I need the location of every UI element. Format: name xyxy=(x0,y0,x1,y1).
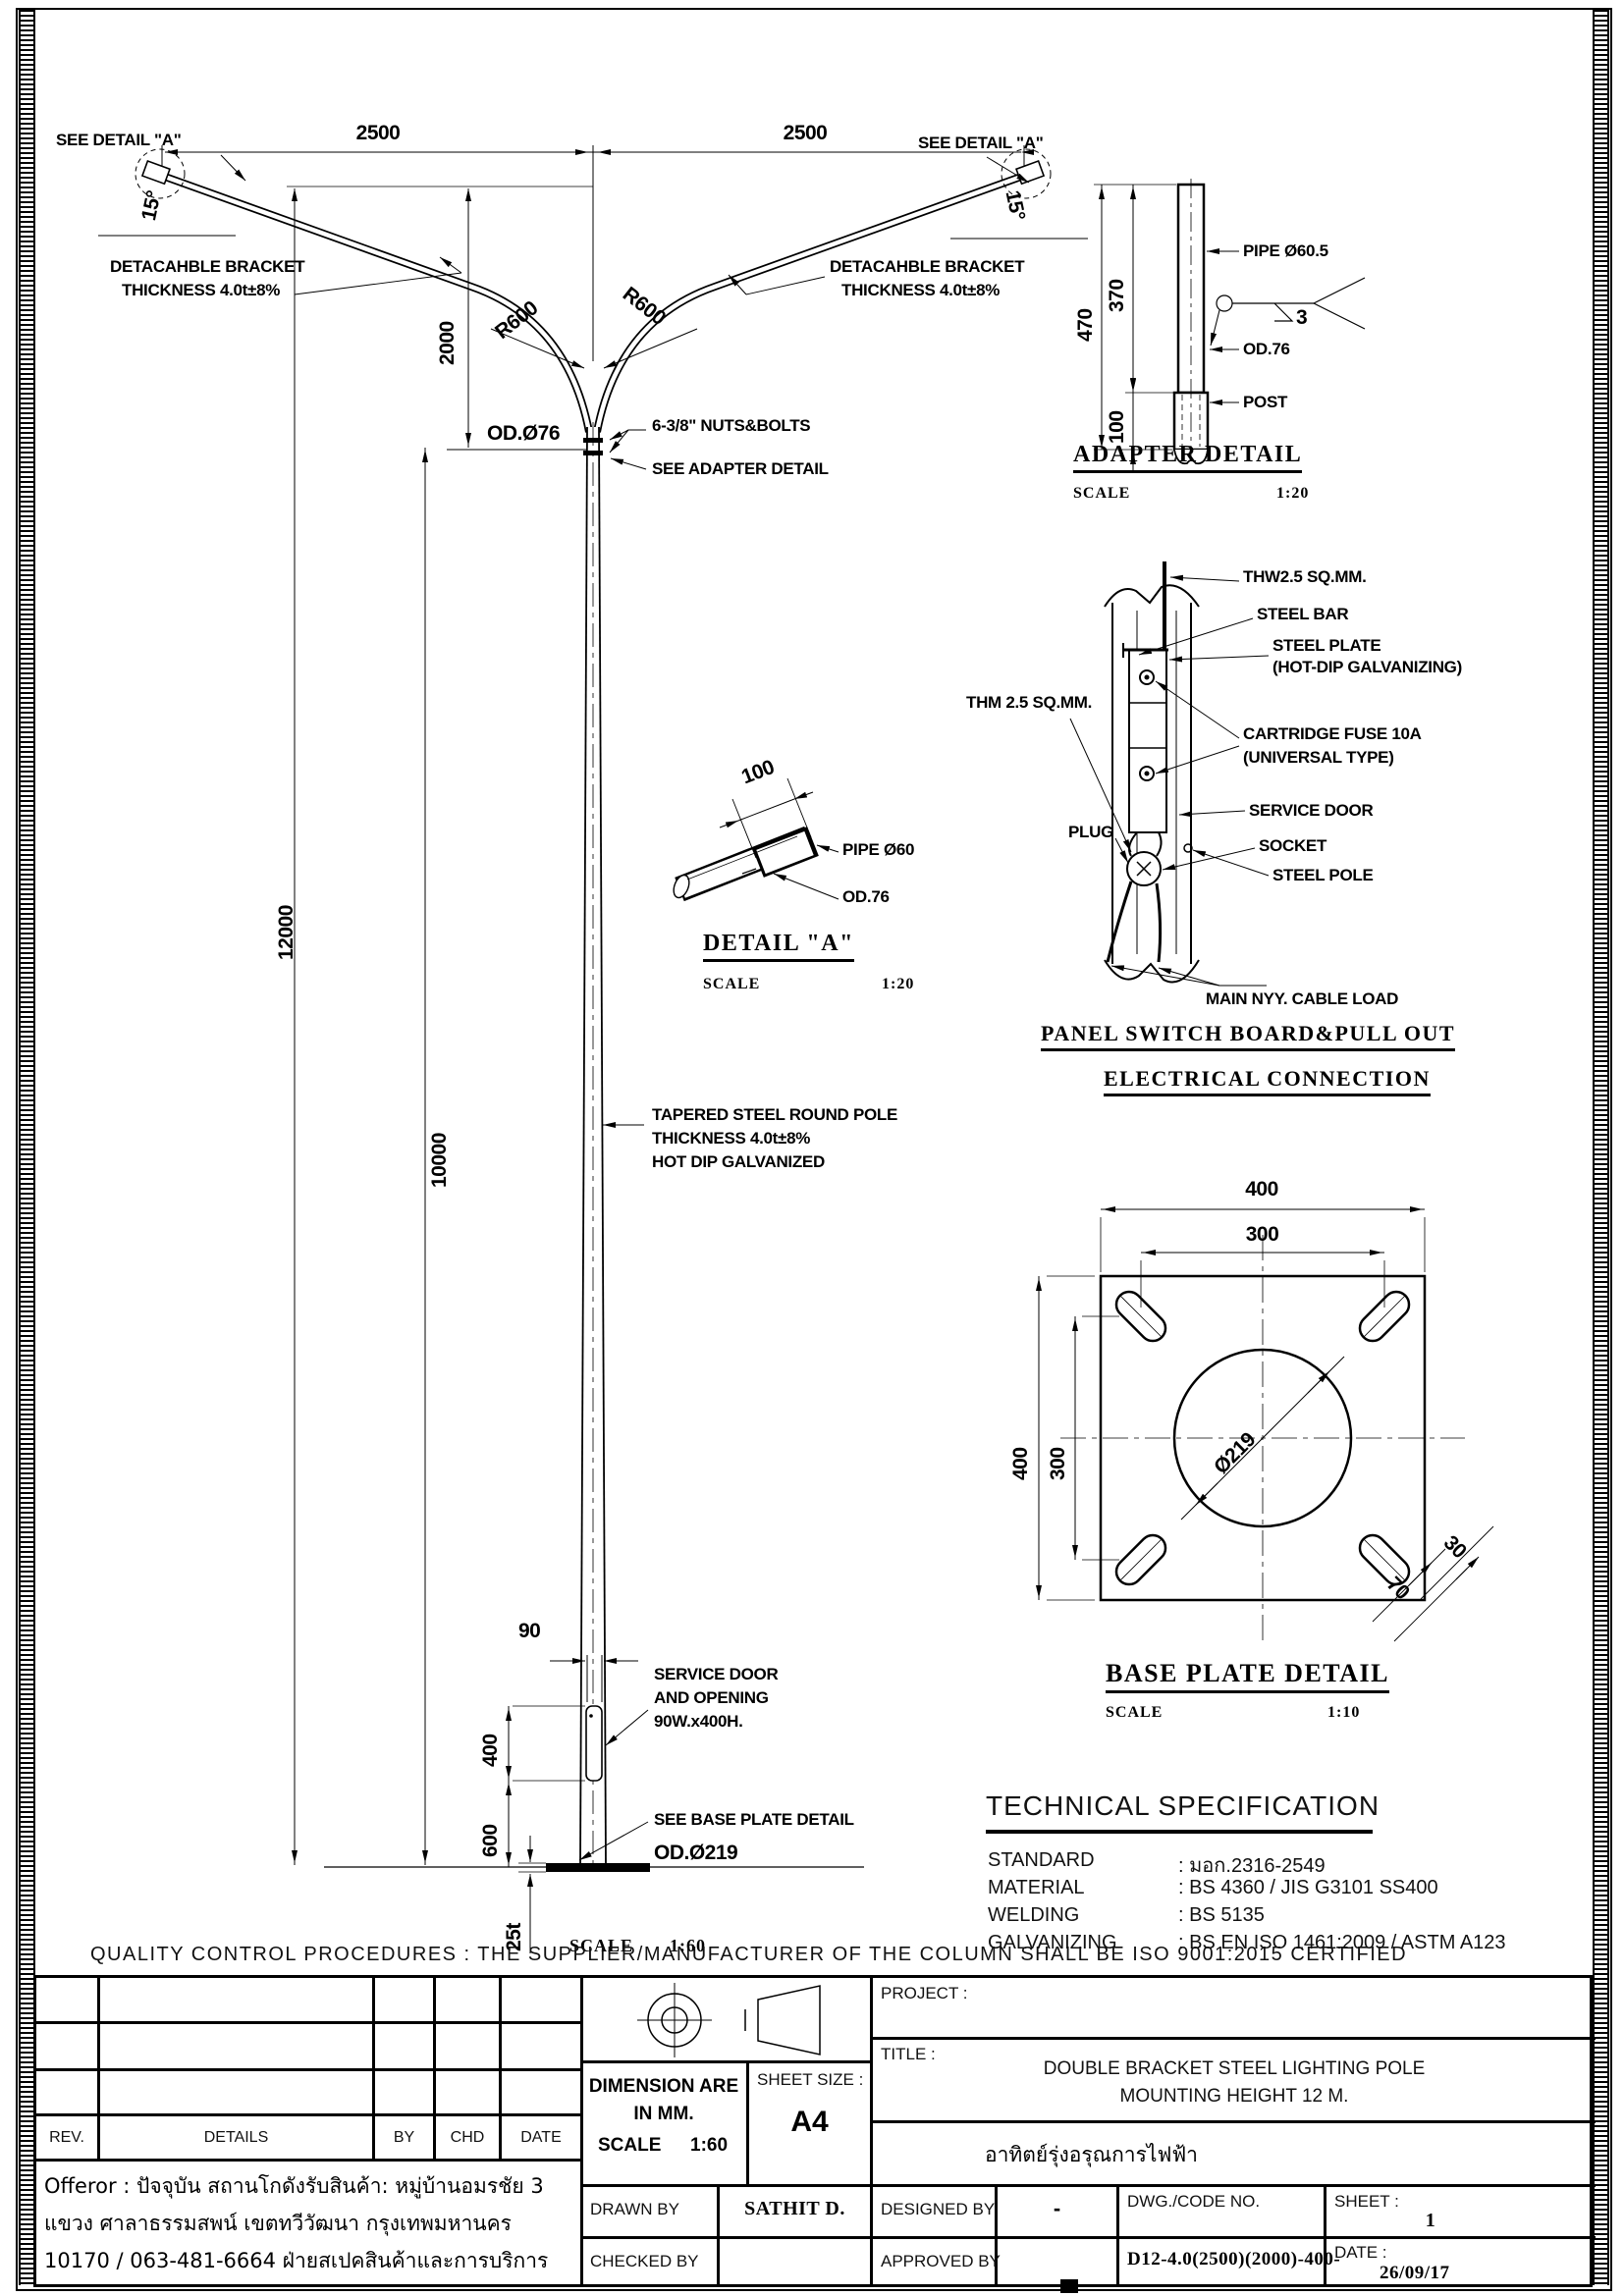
adapter-dim-470: 470 xyxy=(1074,308,1098,342)
steel-plate-label-1: STEEL PLATE xyxy=(1272,636,1380,656)
weld-number: 3 xyxy=(1296,306,1307,330)
spec-row-label-1: MATERIAL xyxy=(988,1877,1085,1899)
adapter-detail xyxy=(1094,179,1365,473)
tapered-note-1: TAPERED STEEL ROUND POLE xyxy=(652,1105,897,1125)
service-door-note-1: SERVICE DOOR xyxy=(654,1665,778,1684)
company-name-thai: อาทิตย์รุ่งอรุณการไฟฟ้า xyxy=(985,2139,1198,2171)
socket-label: SOCKET xyxy=(1259,836,1326,856)
adapter-scale-label: SCALE xyxy=(1073,485,1130,503)
spec-row-value-2: : BS 5135 xyxy=(1178,1904,1265,1927)
detail-a-pipe-label: PIPE Ø60 xyxy=(842,840,914,860)
fuse-label-1: CARTRIDGE FUSE 10A xyxy=(1243,724,1422,744)
plug-label: PLUG xyxy=(1068,823,1113,842)
address-line-2: แขวง ศาลาธรรมสพน์ เขตทวีวัฒนา กรุงเทพมหา… xyxy=(44,2208,512,2240)
rev-col-header: REV. xyxy=(36,2129,97,2147)
tapered-note-2: THICKNESS 4.0t±8% xyxy=(652,1129,810,1148)
steel-bar-label: STEEL BAR xyxy=(1257,605,1348,624)
dim-400: 400 xyxy=(479,1734,503,1767)
main-cable-label: MAIN NYY. CABLE LOAD xyxy=(1206,989,1398,1009)
dwg-code-value: D12-4.0(2500)(2000)-400- xyxy=(1127,2249,1340,2270)
drawn-by-label: DRAWN BY xyxy=(590,2200,679,2219)
service-door-note-3: 90W.x400H. xyxy=(654,1712,743,1732)
panel-switch-board xyxy=(1070,561,1269,986)
see-adapter-label: SEE ADAPTER DETAIL xyxy=(652,459,829,479)
dim-10000: 10000 xyxy=(428,1133,452,1188)
drawing-title-2: MOUNTING HEIGHT 12 M. xyxy=(920,2086,1548,2108)
spec-underline xyxy=(986,1830,1373,1834)
dim-2500-right: 2500 xyxy=(731,122,879,145)
dim-600: 600 xyxy=(479,1824,503,1857)
dimension-note-2: IN MM. xyxy=(580,2104,747,2125)
adapter-detail-title: ADAPTER DETAIL xyxy=(1073,442,1302,473)
approved-by-label: APPROVED BY xyxy=(881,2252,1001,2271)
tapered-note-3: HOT DIP GALVANIZED xyxy=(652,1152,825,1172)
sheet-size-value: A4 xyxy=(749,2106,870,2139)
bracket-note-left-2: THICKNESS 4.0t±8% xyxy=(122,281,280,300)
tb-scale-value: 1:60 xyxy=(690,2135,728,2157)
spec-row-label-2: WELDING xyxy=(988,1904,1079,1927)
dim-12000: 12000 xyxy=(275,905,298,960)
fuse-label-2: (UNIVERSAL TYPE) xyxy=(1243,748,1394,768)
base-dim-300-left: 300 xyxy=(1047,1447,1070,1480)
drawing-sheet: SEE DETAIL "A" SEE DETAIL "A" 2500 2500 … xyxy=(0,0,1624,2296)
chd-col-header: CHD xyxy=(436,2129,499,2147)
panel-title-1: PANEL SWITCH BOARD&PULL OUT xyxy=(1041,1021,1455,1051)
designed-by-value: - xyxy=(998,2196,1116,2221)
bracket-note-right-1: DETACAHBLE BRACKET xyxy=(830,257,1024,277)
dim-90: 90 xyxy=(518,1620,540,1643)
detail-a-scale-label: SCALE xyxy=(703,976,760,993)
dim-2500-left: 2500 xyxy=(304,122,452,145)
sheet-size-label: SHEET SIZE : xyxy=(757,2070,863,2090)
base-scale-value: 1:10 xyxy=(1327,1704,1360,1722)
base-plate-title: BASE PLATE DETAIL xyxy=(1106,1659,1389,1693)
see-detail-a-right-label: SEE DETAIL "A" xyxy=(918,133,1043,153)
panel-title-2: ELECTRICAL CONNECTION xyxy=(1104,1066,1431,1096)
adapter-od76-label: OD.76 xyxy=(1243,340,1290,359)
tb-scale-label: SCALE xyxy=(598,2135,661,2157)
steel-pole-label: STEEL POLE xyxy=(1272,866,1374,885)
designed-by-label: DESIGNED BY xyxy=(881,2200,995,2219)
base-dim-400-left: 400 xyxy=(1009,1447,1033,1480)
base-dim-400-top: 400 xyxy=(1218,1178,1306,1201)
project-label: PROJECT : xyxy=(881,1984,967,2003)
detail-a xyxy=(671,778,839,900)
thw-label: THW2.5 SQ.MM. xyxy=(1243,567,1367,587)
dwg-code-label: DWG./CODE NO. xyxy=(1127,2192,1260,2212)
checked-by-label: CHECKED BY xyxy=(590,2252,699,2271)
spec-row-label-0: STANDARD xyxy=(988,1849,1095,1872)
adapter-dim-100: 100 xyxy=(1106,410,1129,444)
detail-a-scale-value: 1:20 xyxy=(882,976,914,993)
bracket-note-right-2: THICKNESS 4.0t±8% xyxy=(841,281,1000,300)
od219-label: OD.Ø219 xyxy=(654,1842,737,1865)
panel-service-door-label: SERVICE DOOR xyxy=(1249,801,1373,821)
spec-title: TECHNICAL SPECIFICATION xyxy=(986,1790,1380,1822)
thm-label: THM 2.5 SQ.MM. xyxy=(966,693,1092,713)
projection-symbol xyxy=(596,1982,861,2058)
dim-2000: 2000 xyxy=(436,321,460,365)
od76-joint-label: OD.Ø76 xyxy=(487,422,560,446)
base-dim-300-top: 300 xyxy=(1220,1223,1304,1247)
base-plate-detail xyxy=(1039,1209,1493,1641)
quality-control-line: QUALITY CONTROL PROCEDURES : THE SUPPLIE… xyxy=(90,1944,1407,1966)
dimension-note-1: DIMENSION ARE xyxy=(580,2076,747,2098)
bracket-note-left-1: DETACAHBLE BRACKET xyxy=(110,257,304,277)
sheet-value: 1 xyxy=(1391,2210,1470,2232)
date-value: 26/09/17 xyxy=(1380,2263,1450,2284)
see-detail-a-left-label: SEE DETAIL "A" xyxy=(56,131,181,150)
address-line-3: 10170 / 063-481-6664 ฝ่ายสเปคสินค้าและกา… xyxy=(44,2245,548,2277)
pole-leaders xyxy=(509,430,648,1953)
steel-plate-label-2: (HOT-DIP GALVANIZING) xyxy=(1272,658,1462,677)
post-label: POST xyxy=(1243,393,1287,412)
drawn-by-value: SATHIT D. xyxy=(720,2198,870,2220)
address-line-1: Offeror : ปัจจุบัน สถานโกดังรับสินค้า: ห… xyxy=(44,2170,544,2203)
spec-row-value-1: : BS 4360 / JIS G3101 SS400 xyxy=(1178,1877,1438,1899)
adapter-scale-value: 1:20 xyxy=(1276,485,1309,503)
detail-a-od76-label: OD.76 xyxy=(842,887,890,907)
date-col-header: DATE xyxy=(502,2129,580,2147)
detail-a-title: DETAIL "A" xyxy=(703,931,854,962)
base-scale-label: SCALE xyxy=(1106,1704,1163,1722)
title-block: REV. DETAILS BY CHD DATE Offeror : ปัจจุ… xyxy=(33,1975,1593,2287)
details-col-header: DETAILS xyxy=(100,2129,372,2147)
drawing-title-1: DOUBLE BRACKET STEEL LIGHTING POLE xyxy=(920,2058,1548,2080)
service-door-note-2: AND OPENING xyxy=(654,1688,769,1708)
date-label: DATE : xyxy=(1334,2243,1387,2263)
adapter-dim-370: 370 xyxy=(1106,279,1129,312)
see-base-plate-label: SEE BASE PLATE DETAIL xyxy=(654,1810,854,1830)
adapter-pipe-label: PIPE Ø60.5 xyxy=(1243,241,1328,261)
by-col-header: BY xyxy=(375,2129,433,2147)
nuts-bolts-label: 6-3/8" NUTS&BOLTS xyxy=(652,416,810,436)
sheet-label: SHEET : xyxy=(1334,2192,1399,2212)
